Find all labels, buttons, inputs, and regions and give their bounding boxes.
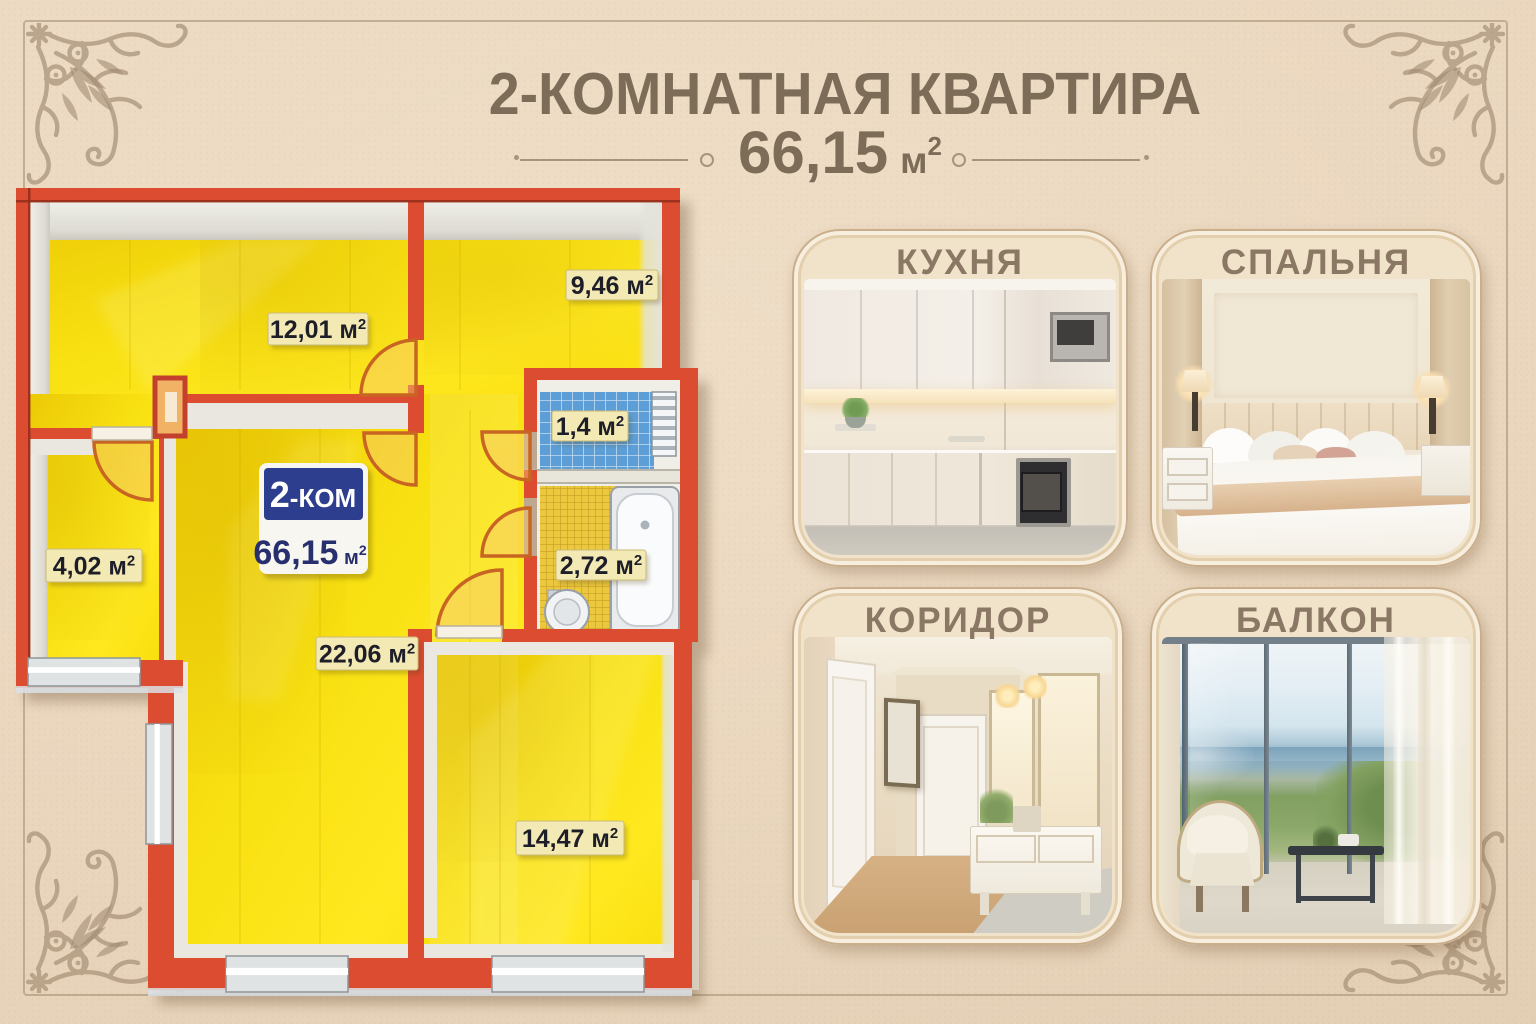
svg-text:4,02 м2: 4,02 м2: [53, 553, 135, 581]
svg-text:9,46 м2: 9,46 м2: [571, 272, 653, 300]
svg-text:2,72 м2: 2,72 м2: [560, 552, 642, 580]
svg-text:12,01 м2: 12,01 м2: [270, 316, 366, 344]
svg-text:22,06 м2: 22,06 м2: [319, 641, 415, 669]
svg-text:14,47 м2: 14,47 м2: [522, 825, 618, 853]
svg-text:1,4 м2: 1,4 м2: [556, 413, 625, 441]
